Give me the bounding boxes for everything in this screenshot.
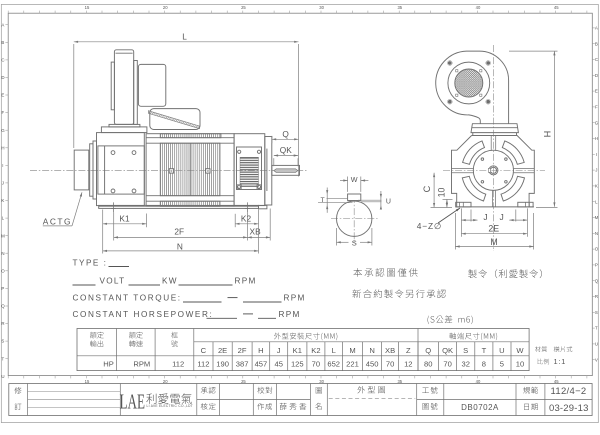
svg-text:15: 15	[85, 379, 90, 384]
svg-text:5: 5	[500, 360, 504, 369]
svg-text:O: O	[1, 268, 5, 273]
svg-text:45: 45	[554, 5, 559, 10]
svg-text:J: J	[483, 212, 487, 222]
svg-text:35: 35	[397, 379, 402, 384]
svg-text:J: J	[2, 181, 4, 186]
svg-text:221: 221	[346, 360, 359, 369]
svg-text:F: F	[2, 110, 5, 115]
svg-text:K1: K1	[119, 214, 130, 224]
svg-text:30: 30	[319, 379, 324, 384]
svg-text:35: 35	[397, 5, 402, 10]
svg-text:10: 10	[436, 188, 446, 198]
svg-text:I: I	[596, 152, 597, 157]
svg-text:RPM: RPM	[133, 360, 150, 369]
svg-text:U: U	[595, 342, 598, 347]
svg-text:70: 70	[386, 360, 394, 369]
svg-text:112: 112	[197, 360, 209, 369]
svg-text:G: G	[595, 120, 599, 125]
svg-text:M: M	[490, 237, 497, 247]
svg-text:LI AVE ELECTRIC CO.,LDT: LI AVE ELECTRIC CO.,LDT	[147, 404, 194, 408]
svg-text:K1: K1	[293, 346, 302, 355]
svg-text:W: W	[351, 175, 358, 184]
svg-text:RPM: RPM	[235, 277, 257, 286]
svg-text:125: 125	[291, 360, 304, 369]
svg-text:12: 12	[404, 360, 412, 369]
svg-text:RPM: RPM	[284, 294, 306, 303]
svg-text:S: S	[595, 310, 598, 315]
svg-text:A: A	[595, 26, 598, 31]
svg-text:L: L	[182, 31, 187, 41]
svg-text:15: 15	[85, 5, 90, 10]
svg-text:ACTG: ACTG	[43, 217, 72, 227]
svg-text:2F: 2F	[174, 226, 184, 236]
svg-text:E: E	[1, 93, 4, 98]
svg-text:DB0702A: DB0702A	[461, 403, 499, 412]
svg-text:457: 457	[255, 360, 268, 369]
svg-text:M: M	[1, 233, 5, 238]
svg-text:W: W	[516, 346, 524, 355]
svg-text:8: 8	[482, 360, 486, 369]
svg-text:U: U	[499, 346, 504, 355]
svg-text:N: N	[595, 231, 598, 236]
svg-text:H: H	[1, 145, 4, 150]
svg-text:C: C	[422, 185, 432, 192]
svg-text:30: 30	[319, 5, 324, 10]
svg-text:M: M	[595, 215, 599, 220]
svg-text:G: G	[1, 128, 5, 133]
svg-text:T: T	[321, 197, 325, 204]
svg-text:C: C	[595, 57, 598, 62]
svg-text:HP: HP	[103, 360, 114, 369]
svg-text:40: 40	[476, 379, 481, 384]
svg-text:L: L	[332, 346, 336, 355]
svg-text:652: 652	[327, 360, 340, 369]
svg-text:LAE: LAE	[120, 390, 146, 414]
svg-text:45: 45	[274, 360, 282, 369]
svg-text:I: I	[2, 163, 3, 168]
svg-text:QK: QK	[442, 346, 453, 355]
svg-text:25: 25	[241, 379, 246, 384]
svg-text:E: E	[595, 89, 598, 94]
svg-text:KW: KW	[162, 277, 178, 286]
svg-text:T: T	[595, 326, 598, 331]
svg-text:K: K	[595, 184, 598, 189]
svg-text:H: H	[595, 136, 598, 141]
svg-text:T: T	[2, 356, 5, 361]
svg-text:CONSTANT TORQUE:: CONSTANT TORQUE:	[73, 294, 182, 303]
svg-text:2F: 2F	[238, 346, 247, 355]
svg-text:S: S	[1, 339, 4, 344]
svg-text:N: N	[1, 251, 4, 256]
svg-text:45: 45	[554, 379, 559, 384]
svg-text:20: 20	[163, 5, 168, 10]
svg-text:XB: XB	[385, 346, 395, 355]
svg-text:CONSTANT HORSEPOWER:: CONSTANT HORSEPOWER:	[73, 310, 214, 319]
svg-text:B: B	[1, 40, 4, 45]
svg-text:O: O	[595, 247, 599, 252]
svg-text:D: D	[595, 73, 598, 78]
svg-text:F: F	[595, 105, 598, 110]
svg-text:K2: K2	[241, 214, 252, 224]
svg-text:D: D	[1, 75, 4, 80]
svg-text:B: B	[595, 41, 598, 46]
svg-text:R: R	[1, 321, 4, 326]
svg-text:10: 10	[516, 360, 524, 369]
svg-text:M: M	[349, 346, 355, 355]
svg-text:N: N	[177, 241, 183, 251]
svg-text:S: S	[352, 238, 357, 247]
svg-text:Q: Q	[1, 304, 5, 309]
svg-text:H: H	[542, 131, 552, 138]
svg-text:40: 40	[476, 5, 481, 10]
svg-text:QK: QK	[280, 145, 292, 155]
svg-text:2E: 2E	[218, 346, 227, 355]
svg-text:32: 32	[461, 360, 469, 369]
svg-text:Q: Q	[595, 278, 599, 283]
svg-text:V: V	[595, 357, 598, 362]
svg-text:70: 70	[443, 360, 451, 369]
svg-text:2E: 2E	[488, 224, 499, 234]
svg-text:450: 450	[366, 360, 379, 369]
svg-text:J: J	[499, 212, 503, 222]
svg-text:U: U	[1, 374, 4, 379]
svg-text:P: P	[595, 263, 598, 268]
svg-text:H: H	[258, 346, 263, 355]
svg-text:RPM: RPM	[279, 310, 301, 319]
svg-text:P: P	[1, 286, 4, 291]
svg-text:S: S	[463, 346, 468, 355]
svg-text:N: N	[369, 346, 374, 355]
svg-text:A: A	[1, 22, 4, 27]
svg-text:U: U	[386, 199, 391, 206]
svg-text:C: C	[1, 58, 4, 63]
svg-text:XB: XB	[250, 226, 262, 236]
svg-text:25: 25	[241, 5, 246, 10]
svg-text:70: 70	[312, 360, 320, 369]
svg-text:VOLT: VOLT	[100, 277, 126, 286]
svg-text:80: 80	[424, 360, 432, 369]
svg-text:1:1: 1:1	[554, 357, 567, 366]
svg-text:112/4−2: 112/4−2	[551, 386, 587, 397]
svg-text:TYPE :: TYPE :	[73, 258, 108, 267]
svg-text:Q: Q	[425, 346, 431, 355]
svg-text:Z: Z	[406, 346, 411, 355]
svg-text:K2: K2	[311, 346, 320, 355]
svg-text:K: K	[1, 198, 4, 203]
svg-text:190: 190	[216, 360, 229, 369]
svg-text:R: R	[595, 294, 598, 299]
svg-text:J: J	[277, 346, 281, 355]
svg-text:03-29-13: 03-29-13	[549, 403, 589, 414]
svg-text:112: 112	[172, 360, 184, 369]
svg-text:C: C	[201, 346, 207, 355]
svg-text:387: 387	[236, 360, 249, 369]
svg-text:Q: Q	[282, 129, 289, 139]
svg-text:20: 20	[163, 379, 168, 384]
svg-text:J: J	[595, 168, 597, 173]
svg-text:T: T	[482, 346, 487, 355]
